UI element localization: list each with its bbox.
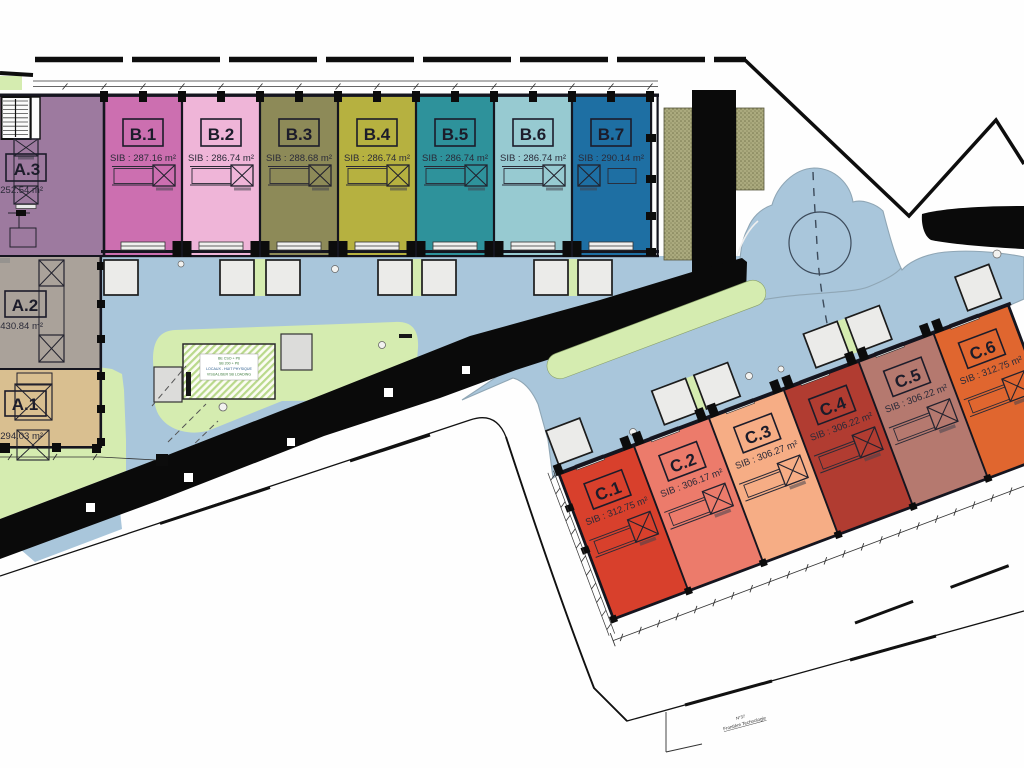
svg-text:B.2: B.2 <box>208 125 234 144</box>
svg-text:B : 294.03 m²: B : 294.03 m² <box>0 431 43 442</box>
svg-text:SIB : 286.74 m²: SIB : 286.74 m² <box>500 153 566 164</box>
svg-text:VISUALISER SB LOADING: VISUALISER SB LOADING <box>207 373 251 377</box>
svg-text:BE CSO + P6: BE CSO + P6 <box>218 357 240 361</box>
svg-text:SIB : 288.68 m²: SIB : 288.68 m² <box>266 153 332 164</box>
svg-text:B : 430.84 m²: B : 430.84 m² <box>0 321 43 332</box>
svg-text:A.3: A.3 <box>14 160 40 179</box>
svg-text:B.1: B.1 <box>130 125 156 144</box>
svg-text:SIB : 286.74 m²: SIB : 286.74 m² <box>188 153 254 164</box>
svg-text:A.1: A.1 <box>12 395 38 414</box>
svg-text:SIB : 286.74 m²: SIB : 286.74 m² <box>422 153 488 164</box>
svg-text:B.4: B.4 <box>364 125 391 144</box>
svg-text:B.7: B.7 <box>598 125 624 144</box>
svg-text:SIB : 286.74 m²: SIB : 286.74 m² <box>344 153 410 164</box>
svg-text:B.6: B.6 <box>520 125 546 144</box>
svg-text:B.3: B.3 <box>286 125 312 144</box>
svg-text:B.5: B.5 <box>442 125 468 144</box>
svg-text:SIB : 290.14 m²: SIB : 290.14 m² <box>578 153 644 164</box>
svg-text:SIB : 287.16 m²: SIB : 287.16 m² <box>110 153 176 164</box>
svg-text:A.2: A.2 <box>12 296 38 315</box>
svg-text:B : 252.54 m²: B : 252.54 m² <box>0 185 43 196</box>
svg-text:LOCAUX - HUIT PHYSIQUE: LOCAUX - HUIT PHYSIQUE <box>206 367 252 371</box>
svg-text:SB 200 + P6: SB 200 + P6 <box>219 362 239 366</box>
